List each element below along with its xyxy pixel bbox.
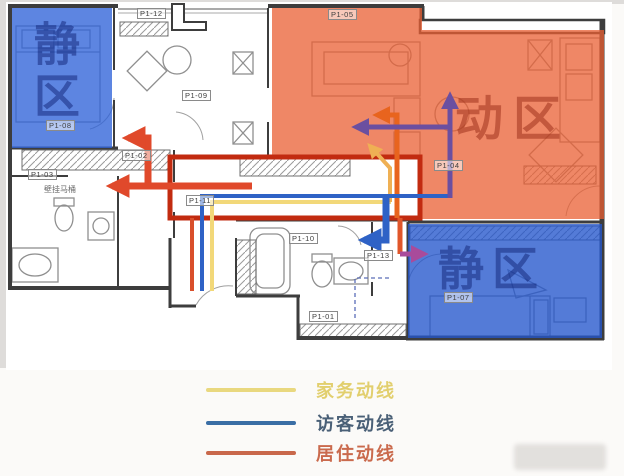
- room-tag: P1-10: [289, 233, 318, 244]
- legend-item-housework: 家务动线: [206, 380, 396, 400]
- quiet-zone-label-bottom-right: 静区: [438, 246, 546, 293]
- room-tag: P1-01: [309, 311, 338, 322]
- room-tag: P1-09: [182, 90, 211, 101]
- legend-item-resident: 居住动线: [206, 443, 396, 463]
- legend-label: 家务动线: [316, 377, 396, 403]
- resident-line-swatch: [206, 451, 296, 455]
- room-tag: P1-07: [444, 292, 473, 303]
- room-tag: P1-12: [137, 8, 166, 19]
- room-tag: P1-13: [364, 250, 393, 261]
- room-tag: P1-03: [28, 169, 57, 180]
- legend-label: 访客动线: [316, 410, 396, 436]
- legend-item-visitor: 访客动线: [206, 413, 396, 433]
- room-tag: P1-08: [46, 120, 75, 131]
- legend-label: 居住动线: [316, 440, 396, 466]
- room-tag: P1-05: [328, 9, 357, 20]
- housework-line-swatch: [206, 388, 296, 392]
- room-tag: P1-02: [122, 150, 151, 161]
- floor-plan-figure: 静区 动区 静区 P1-12 P1-09 P1-08 P1-03 P1-02 P…: [0, 0, 624, 476]
- room-tag: P1-04: [434, 160, 463, 171]
- quiet-zone-label-top-left: 静区: [30, 20, 77, 124]
- visitor-line-swatch: [206, 421, 296, 425]
- watermark-blur: [514, 444, 606, 470]
- active-zone-label: 动区: [455, 96, 571, 145]
- room-tag: P1-11: [186, 195, 214, 206]
- wall-hung-toilet-note: 壁挂马桶: [44, 184, 76, 195]
